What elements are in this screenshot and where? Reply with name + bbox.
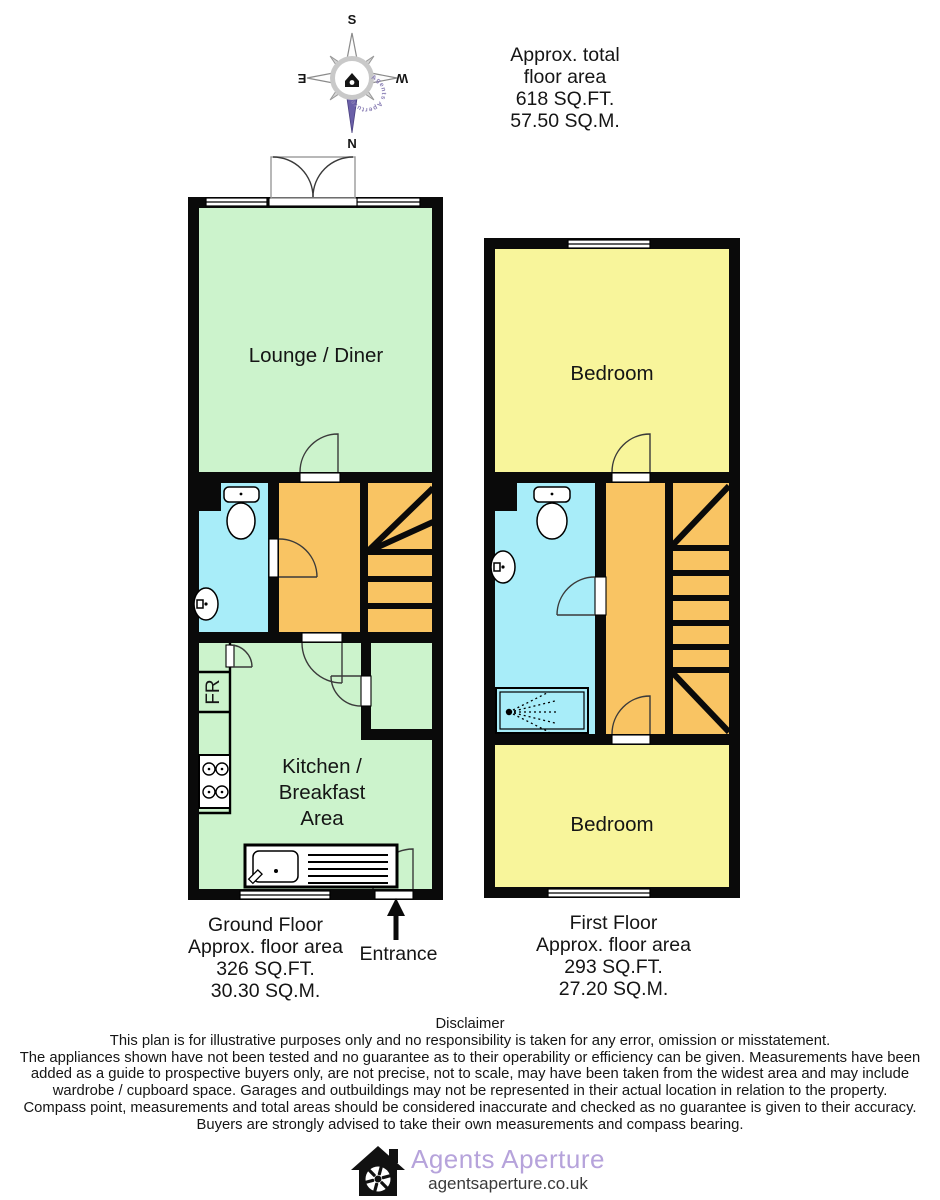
agents-aperture-logo-icon bbox=[350, 1144, 406, 1198]
compass-label-west: W bbox=[395, 71, 408, 86]
hob-icon bbox=[199, 755, 230, 808]
room-lounge-diner bbox=[199, 208, 432, 472]
kitchen-label-line2: Breakfast bbox=[279, 781, 366, 804]
door-swing bbox=[313, 157, 353, 197]
compass-label-north: N bbox=[347, 136, 356, 151]
disclaimer-block: Disclaimer This plan is for illustrative… bbox=[0, 1016, 940, 1134]
room-bedroom-front bbox=[495, 249, 729, 472]
total-area-block: Approx. total floor area 618 SQ.FT. 57.5… bbox=[464, 44, 666, 132]
ground-floor-plan: Lounge / Diner Kitchen / Breakfast Area … bbox=[188, 157, 443, 940]
bedroom-back-label: Bedroom bbox=[570, 813, 653, 836]
first-floor-caption: First Floor Approx. floor area 293 SQ.FT… bbox=[511, 912, 716, 1000]
first-caption-line: 27.20 SQ.M. bbox=[511, 978, 716, 1000]
first-caption-line: First Floor bbox=[511, 912, 716, 934]
tap-icon bbox=[197, 600, 203, 608]
kitchen-label-line3: Area bbox=[300, 807, 344, 830]
door-opening bbox=[595, 577, 606, 615]
kitchen-label-line1: Kitchen / bbox=[282, 755, 362, 778]
ground-floor-caption: Ground Floor Approx. floor area 326 SQ.F… bbox=[163, 914, 368, 1002]
disclaimer-line: wardrobe / cupboard space. Garages and o… bbox=[0, 1083, 940, 1100]
brand-url: agentsaperture.co.uk bbox=[411, 1174, 605, 1193]
toilet-icon bbox=[227, 503, 255, 539]
total-area-line: 57.50 SQ.M. bbox=[464, 110, 666, 132]
floorplan-page: Agents Aperture S N E W bbox=[0, 0, 940, 1200]
door-opening bbox=[612, 473, 650, 482]
stairs-ground bbox=[360, 483, 432, 632]
door-opening bbox=[302, 633, 342, 642]
landing-first bbox=[606, 483, 665, 734]
door-opening bbox=[269, 539, 278, 577]
ground-caption-line: 326 SQ.FT. bbox=[163, 958, 368, 980]
total-area-line: 618 SQ.FT. bbox=[464, 88, 666, 110]
first-caption-line: 293 SQ.FT. bbox=[511, 956, 716, 978]
disclaimer-line: added as a guide to prospective buyers o… bbox=[0, 1066, 940, 1083]
brand-name: Agents Aperture bbox=[411, 1144, 605, 1174]
ground-caption-line: Approx. floor area bbox=[163, 936, 368, 958]
lounge-diner-label: Lounge / Diner bbox=[249, 344, 384, 367]
entrance-label: Entrance bbox=[346, 943, 451, 966]
door-opening bbox=[226, 645, 234, 667]
brand-text-column: Agents Aperture agentsaperture.co.uk bbox=[411, 1144, 605, 1193]
compass-label-east: E bbox=[297, 71, 306, 86]
first-caption-line: Approx. floor area bbox=[511, 934, 716, 956]
ground-caption-line: 30.30 SQ.M. bbox=[163, 980, 368, 1002]
door-opening bbox=[269, 198, 357, 206]
door-swing bbox=[273, 157, 313, 197]
compass-label-south: S bbox=[348, 12, 357, 27]
ground-caption-line: Ground Floor bbox=[163, 914, 368, 936]
disclaimer-line: Buyers are strongly advised to take thei… bbox=[0, 1117, 940, 1134]
total-area-line: Approx. total bbox=[464, 44, 666, 66]
branding-footer: Agents Aperture agentsaperture.co.uk bbox=[350, 1144, 605, 1198]
fridge-label: FR bbox=[203, 679, 224, 704]
entrance-arrow bbox=[387, 898, 405, 940]
bedroom-front-label: Bedroom bbox=[570, 362, 653, 385]
door-opening bbox=[300, 473, 340, 482]
door-opening bbox=[361, 676, 371, 706]
total-area-line: floor area bbox=[464, 66, 666, 88]
disclaimer-line: The appliances shown have not been teste… bbox=[0, 1050, 940, 1067]
door-opening bbox=[612, 735, 650, 744]
door-opening bbox=[375, 891, 413, 899]
disclaimer-line: This plan is for illustrative purposes o… bbox=[0, 1033, 940, 1050]
toilet-icon bbox=[537, 503, 567, 539]
disclaimer-line: Compass point, measurements and total ar… bbox=[0, 1100, 940, 1117]
first-floor-plan: Bedroom Bedroom bbox=[484, 238, 740, 898]
tap-icon bbox=[494, 563, 500, 571]
hallway-ground bbox=[279, 483, 360, 632]
compass-rose: Agents Aperture S N E W bbox=[297, 12, 408, 151]
disclaimer-title: Disclaimer bbox=[0, 1016, 940, 1033]
